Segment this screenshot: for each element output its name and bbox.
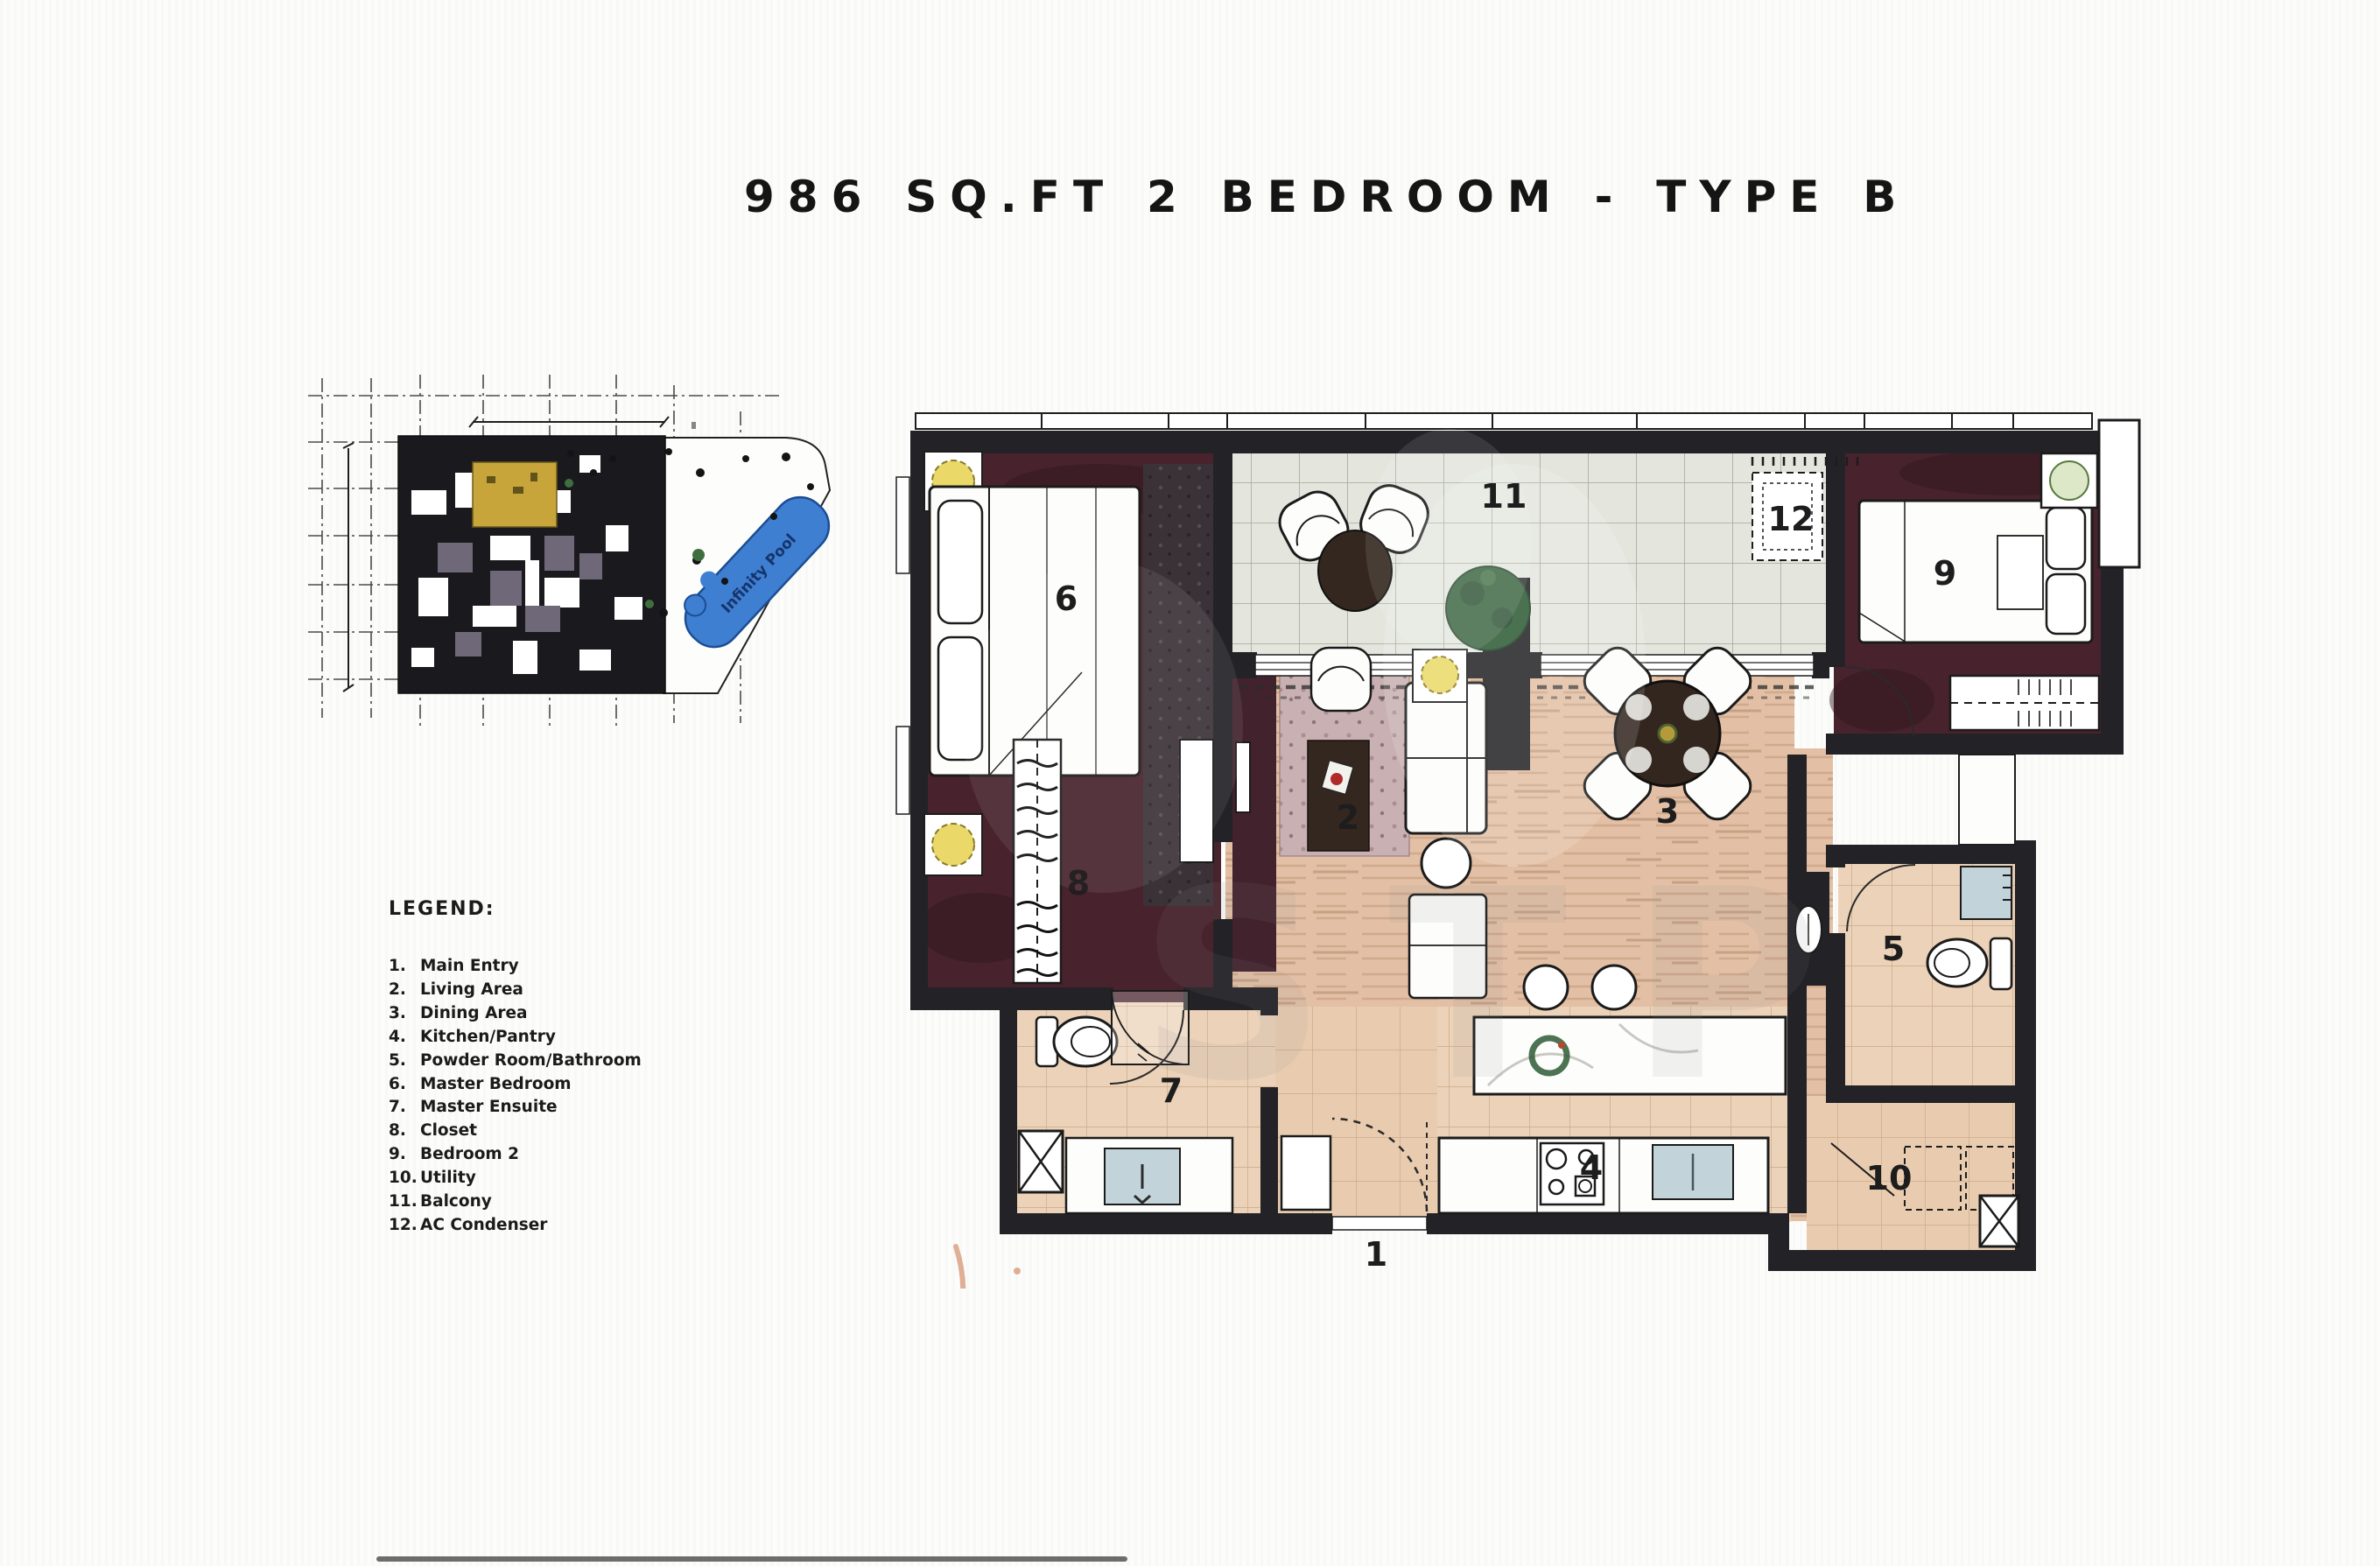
armchair xyxy=(1311,648,1371,711)
legend-item-label: Balcony xyxy=(420,1192,492,1211)
legend-item-label: Kitchen/Pantry xyxy=(420,1028,556,1046)
vanity xyxy=(1066,1138,1232,1213)
legend-item-label: Bedroom 2 xyxy=(420,1145,519,1163)
scan-artifacts xyxy=(923,1246,1021,1289)
floor-plan: STP 123456789101112 xyxy=(884,396,2145,1289)
key-plan: Infinity Pool xyxy=(293,363,853,740)
legend-item-number: 8. xyxy=(389,1120,420,1143)
kitchen-counter xyxy=(1439,1138,1768,1213)
legend-item-number: 2. xyxy=(389,979,420,1002)
legend-item-label: Dining Area xyxy=(420,1004,528,1022)
legend-item: 8.Closet xyxy=(389,1120,642,1143)
wardrobe xyxy=(1950,676,2099,730)
legend-item: 5.Powder Room/Bathroom xyxy=(389,1050,642,1073)
legend-item-number: 10. xyxy=(389,1167,420,1190)
room-number-label: 2 xyxy=(1337,798,1359,837)
legend-item-label: Master Bedroom xyxy=(420,1075,572,1093)
legend-item-number: 4. xyxy=(389,1026,420,1050)
legend-item-number: 9. xyxy=(389,1143,420,1167)
keyplan-building xyxy=(398,436,665,693)
keyplan-highlighted-unit xyxy=(473,462,557,527)
legend-item: 6.Master Bedroom xyxy=(389,1073,642,1097)
room-number-label: 7 xyxy=(1160,1071,1183,1110)
legend-item-label: Powder Room/Bathroom xyxy=(420,1051,642,1070)
room-number-label: 6 xyxy=(1055,579,1078,618)
room-number-label: 4 xyxy=(1580,1148,1603,1187)
powder-toilet xyxy=(1927,938,2011,989)
legend-item: 12.AC Condenser xyxy=(389,1214,642,1238)
room-number-label: 3 xyxy=(1656,792,1679,831)
room-number-label: 9 xyxy=(1934,554,1956,593)
legend-item-number: 6. xyxy=(389,1073,420,1097)
table-centerpiece xyxy=(1659,725,1676,742)
room-number-label: 5 xyxy=(1882,930,1905,968)
shaft xyxy=(1980,1196,2018,1246)
legend-item-number: 5. xyxy=(389,1050,420,1073)
powder-sink xyxy=(1961,867,2011,919)
nightstand xyxy=(2041,453,2097,508)
legend-item: 11.Balcony xyxy=(389,1190,642,1214)
legend-item: 9.Bedroom 2 xyxy=(389,1143,642,1167)
room-number-label: 12 xyxy=(1768,500,1815,538)
legend-item-number: 3. xyxy=(389,1002,420,1026)
room-number-label: 10 xyxy=(1866,1159,1913,1197)
legend-item: 1.Main Entry xyxy=(389,955,642,979)
toilet xyxy=(1036,1017,1117,1066)
room-number-label: 11 xyxy=(1481,477,1527,516)
legend-item-label: AC Condenser xyxy=(420,1216,547,1234)
room-number-label: 8 xyxy=(1067,864,1090,902)
legend-item: 2.Living Area xyxy=(389,979,642,1002)
scan-edge-line xyxy=(376,1556,1127,1562)
legend-item-label: Closet xyxy=(420,1121,477,1140)
shaft xyxy=(1019,1131,1063,1192)
scanned-floorplan-page: 986 SQ.FT 2 BEDROOM - TYPE B xyxy=(0,0,2380,1566)
legend-item-label: Main Entry xyxy=(420,957,519,975)
legend-item-number: 11. xyxy=(389,1190,420,1214)
legend-item: 7.Master Ensuite xyxy=(389,1096,642,1120)
legend-item-number: 12. xyxy=(389,1214,420,1238)
scan-speck xyxy=(692,422,696,429)
entry-closet xyxy=(1281,1136,1330,1210)
legend-item-number: 7. xyxy=(389,1096,420,1120)
legend-list: 1.Main Entry2.Living Area3.Dining Area4.… xyxy=(389,955,642,1238)
legend: LEGEND: 1.Main Entry2.Living Area3.Dinin… xyxy=(389,898,642,1238)
legend-item-label: Utility xyxy=(420,1169,476,1187)
watermark-text: STP xyxy=(1138,833,1883,1139)
legend-heading: LEGEND: xyxy=(389,898,642,920)
legend-item-number: 1. xyxy=(389,955,420,979)
room-number-label: 1 xyxy=(1365,1235,1387,1274)
legend-item-label: Living Area xyxy=(420,980,523,999)
legend-item-label: Master Ensuite xyxy=(420,1098,558,1116)
page-title: 986 SQ.FT 2 BEDROOM - TYPE B xyxy=(744,172,1759,222)
legend-item: 4.Kitchen/Pantry xyxy=(389,1026,642,1050)
legend-item: 10.Utility xyxy=(389,1167,642,1190)
kitchen-sink xyxy=(1653,1145,1733,1199)
planter-plant xyxy=(932,824,974,866)
bed-2 xyxy=(1859,501,2092,643)
legend-item: 3.Dining Area xyxy=(389,1002,642,1026)
